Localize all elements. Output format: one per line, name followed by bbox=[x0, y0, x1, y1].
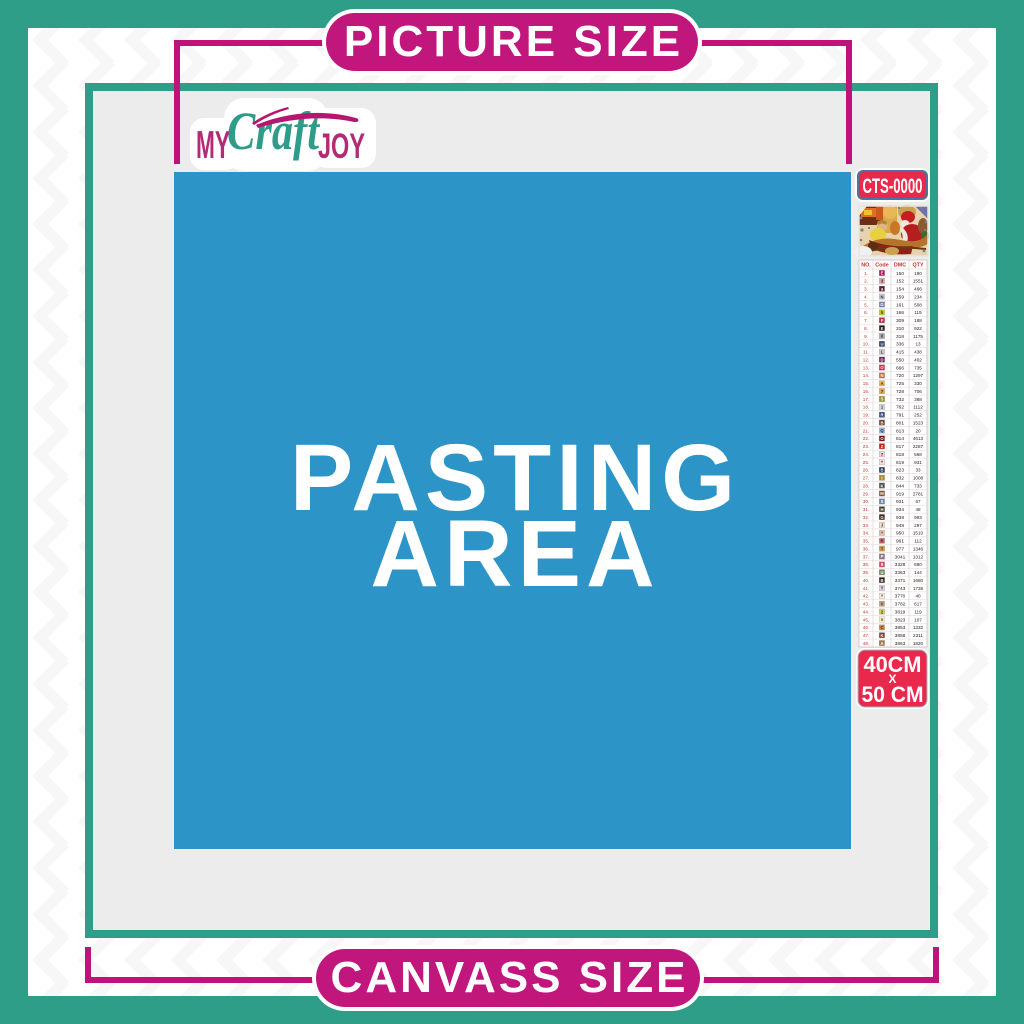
svg-text:43.: 43. bbox=[863, 602, 869, 607]
svg-text:46.: 46. bbox=[863, 625, 869, 630]
svg-text:336: 336 bbox=[896, 342, 904, 348]
svg-text:252: 252 bbox=[914, 413, 922, 418]
svg-text:1297: 1297 bbox=[913, 373, 924, 378]
svg-text:33: 33 bbox=[915, 468, 921, 473]
svg-text:188: 188 bbox=[914, 318, 922, 323]
svg-text:28.: 28. bbox=[863, 483, 869, 488]
svg-text:20.: 20. bbox=[863, 420, 869, 425]
svg-text:150: 150 bbox=[896, 271, 904, 277]
svg-text:961: 961 bbox=[896, 539, 904, 545]
svg-text:733: 733 bbox=[914, 483, 922, 488]
svg-text:38.: 38. bbox=[863, 562, 869, 567]
svg-text:818: 818 bbox=[896, 452, 904, 458]
svg-text:938: 938 bbox=[896, 515, 904, 521]
svg-text:9.: 9. bbox=[864, 334, 868, 339]
svg-text:159: 159 bbox=[896, 294, 904, 300]
svg-text:3371: 3371 bbox=[895, 578, 906, 584]
svg-text:T: T bbox=[881, 546, 884, 551]
svg-text:5.: 5. bbox=[864, 302, 868, 307]
svg-text:1312: 1312 bbox=[913, 554, 924, 559]
svg-text:K: K bbox=[880, 633, 883, 638]
svg-text:3782: 3782 bbox=[895, 602, 906, 608]
svg-text:MY: MY bbox=[196, 124, 230, 167]
svg-text:1008: 1008 bbox=[913, 476, 924, 481]
svg-text:A: A bbox=[880, 381, 883, 386]
svg-text:G: G bbox=[880, 302, 883, 307]
svg-text:107: 107 bbox=[914, 617, 922, 622]
svg-text:115: 115 bbox=[914, 310, 922, 315]
svg-text:U: U bbox=[880, 342, 883, 347]
svg-text:4.: 4. bbox=[864, 294, 868, 299]
svg-text:N: N bbox=[880, 294, 883, 299]
svg-text:8.: 8. bbox=[864, 326, 868, 331]
svg-text:K: K bbox=[880, 483, 883, 488]
svg-text:144: 144 bbox=[914, 570, 922, 575]
svg-text:568: 568 bbox=[914, 452, 922, 457]
svg-text:154: 154 bbox=[896, 287, 904, 293]
svg-text:15.: 15. bbox=[863, 381, 869, 386]
svg-text:813: 813 bbox=[896, 428, 904, 434]
svg-text:16.: 16. bbox=[863, 389, 869, 394]
svg-text:B: B bbox=[880, 420, 883, 425]
svg-text:25.: 25. bbox=[863, 460, 869, 465]
svg-text:1523: 1523 bbox=[913, 420, 924, 425]
svg-text:40: 40 bbox=[915, 594, 921, 599]
svg-text:735: 735 bbox=[914, 365, 922, 370]
svg-text:438: 438 bbox=[914, 350, 922, 355]
svg-text:728: 728 bbox=[896, 389, 904, 395]
svg-text:977: 977 bbox=[896, 546, 904, 552]
svg-text:550: 550 bbox=[896, 357, 904, 363]
svg-text:318: 318 bbox=[896, 334, 904, 340]
svg-text:112: 112 bbox=[914, 539, 922, 544]
svg-text:18.: 18. bbox=[863, 405, 869, 410]
svg-text:3.: 3. bbox=[864, 287, 868, 292]
svg-text:1680: 1680 bbox=[913, 578, 924, 583]
svg-text:119: 119 bbox=[914, 609, 922, 614]
svg-text:14.: 14. bbox=[863, 373, 869, 378]
svg-text:23.: 23. bbox=[863, 444, 869, 449]
svg-text:B: B bbox=[880, 468, 883, 473]
svg-text:U: U bbox=[880, 570, 883, 575]
svg-text:1820: 1820 bbox=[913, 641, 924, 646]
svg-text:11.: 11. bbox=[863, 350, 869, 355]
svg-text:45.: 45. bbox=[863, 617, 869, 622]
svg-text:725: 725 bbox=[896, 381, 904, 387]
svg-text:Y: Y bbox=[881, 586, 884, 591]
svg-text:Craft: Craft bbox=[227, 101, 321, 161]
svg-text:17.: 17. bbox=[863, 397, 869, 402]
svg-text:2311: 2311 bbox=[913, 633, 923, 638]
svg-text:161: 161 bbox=[896, 302, 904, 308]
svg-text:3853: 3853 bbox=[895, 625, 906, 631]
svg-text:67: 67 bbox=[915, 499, 921, 504]
svg-text:Z: Z bbox=[881, 444, 884, 449]
svg-text:B: B bbox=[880, 578, 883, 583]
svg-text:2.: 2. bbox=[864, 279, 868, 284]
svg-text:931: 931 bbox=[896, 499, 904, 505]
svg-text:310: 310 bbox=[896, 326, 904, 332]
svg-text:DMC: DMC bbox=[894, 263, 906, 269]
svg-text:844: 844 bbox=[896, 483, 904, 489]
svg-text:21.: 21. bbox=[863, 428, 869, 433]
svg-text:10.: 10. bbox=[863, 342, 869, 347]
svg-text:26.: 26. bbox=[863, 468, 869, 473]
svg-text:7.: 7. bbox=[864, 318, 868, 323]
svg-text:234: 234 bbox=[914, 294, 922, 299]
svg-text:3328: 3328 bbox=[895, 562, 906, 568]
svg-text:1.: 1. bbox=[864, 271, 868, 276]
svg-text:297: 297 bbox=[914, 523, 922, 528]
svg-text:1332: 1332 bbox=[913, 625, 924, 630]
svg-text:48: 48 bbox=[915, 507, 921, 512]
svg-text:40.: 40. bbox=[863, 578, 869, 583]
svg-text:30.: 30. bbox=[863, 499, 869, 504]
svg-text:617: 617 bbox=[914, 602, 922, 607]
svg-text:801: 801 bbox=[896, 420, 904, 426]
svg-text:I: I bbox=[881, 475, 882, 480]
svg-text:1112: 1112 bbox=[913, 405, 923, 410]
svg-text:M: M bbox=[880, 491, 884, 496]
svg-text:4613: 4613 bbox=[913, 436, 924, 441]
svg-text:1551: 1551 bbox=[913, 279, 924, 284]
svg-text:720: 720 bbox=[896, 373, 904, 379]
svg-text:24.: 24. bbox=[863, 452, 869, 457]
svg-text:415: 415 bbox=[896, 350, 904, 356]
svg-text:309: 309 bbox=[896, 318, 904, 324]
svg-text:466: 466 bbox=[914, 287, 922, 292]
svg-text:814: 814 bbox=[896, 436, 904, 442]
svg-text:190: 190 bbox=[914, 271, 922, 276]
svg-text:330: 330 bbox=[914, 381, 922, 386]
svg-text:819: 819 bbox=[896, 460, 904, 466]
svg-text:3858: 3858 bbox=[895, 633, 906, 639]
svg-text:3770: 3770 bbox=[895, 594, 906, 600]
svg-text:934: 934 bbox=[896, 507, 904, 513]
svg-text:35.: 35. bbox=[863, 539, 869, 544]
svg-text:931: 931 bbox=[914, 460, 922, 465]
svg-text:N: N bbox=[880, 373, 883, 378]
svg-text:732: 732 bbox=[896, 397, 904, 403]
svg-text:D: D bbox=[880, 357, 883, 362]
svg-text:h: h bbox=[881, 310, 884, 315]
svg-text:NO.: NO. bbox=[861, 263, 871, 269]
svg-text:13.: 13. bbox=[863, 365, 869, 370]
svg-text:S: S bbox=[881, 397, 884, 402]
svg-text:32.: 32. bbox=[863, 515, 869, 520]
svg-text:S: S bbox=[881, 499, 884, 504]
svg-text:31.: 31. bbox=[863, 507, 869, 512]
svg-text:42.: 42. bbox=[863, 594, 869, 599]
svg-text:706: 706 bbox=[914, 389, 922, 394]
svg-text:832: 832 bbox=[896, 476, 904, 482]
svg-text:27.: 27. bbox=[863, 476, 869, 481]
svg-text:44.: 44. bbox=[863, 609, 869, 614]
svg-text:1175: 1175 bbox=[913, 334, 923, 339]
svg-text:666: 666 bbox=[896, 365, 904, 371]
svg-text:3823: 3823 bbox=[895, 617, 906, 623]
svg-text:1346: 1346 bbox=[913, 546, 924, 551]
svg-text:817: 817 bbox=[896, 444, 904, 450]
svg-text:Code: Code bbox=[875, 263, 888, 269]
svg-text:388: 388 bbox=[914, 397, 922, 402]
svg-text:R: R bbox=[880, 412, 883, 417]
svg-text:508: 508 bbox=[914, 302, 922, 307]
svg-text:H: H bbox=[880, 507, 883, 512]
svg-text:C: C bbox=[880, 625, 883, 630]
svg-text:CTS-0000: CTS-0000 bbox=[863, 175, 923, 198]
svg-text:QTY: QTY bbox=[912, 263, 923, 269]
svg-text:3363: 3363 bbox=[895, 570, 906, 576]
svg-text:919: 919 bbox=[896, 491, 904, 497]
svg-text:13: 13 bbox=[915, 342, 921, 347]
svg-text:20: 20 bbox=[915, 428, 921, 433]
svg-text:3041: 3041 bbox=[895, 554, 906, 560]
svg-text:41.: 41. bbox=[863, 586, 869, 591]
svg-text:2781: 2781 bbox=[913, 491, 924, 496]
svg-text:P: P bbox=[881, 554, 884, 559]
svg-text:3863: 3863 bbox=[895, 641, 906, 647]
svg-text:X: X bbox=[881, 334, 884, 339]
svg-text:948: 948 bbox=[896, 523, 904, 529]
svg-text:762: 762 bbox=[896, 405, 904, 411]
svg-text:1510: 1510 bbox=[913, 531, 924, 536]
svg-text:47.: 47. bbox=[863, 633, 869, 638]
svg-text:R: R bbox=[880, 538, 883, 543]
svg-text:G: G bbox=[880, 515, 883, 520]
svg-text:1738: 1738 bbox=[913, 586, 924, 591]
svg-text:166: 166 bbox=[896, 310, 904, 316]
svg-text:3819: 3819 bbox=[895, 609, 906, 615]
svg-text:6.: 6. bbox=[864, 310, 868, 315]
svg-text:50 CM: 50 CM bbox=[862, 682, 924, 707]
svg-text:L: L bbox=[881, 349, 884, 354]
svg-text:993: 993 bbox=[914, 515, 922, 520]
svg-text:E: E bbox=[881, 271, 884, 276]
svg-text:33.: 33. bbox=[863, 523, 869, 528]
svg-text:680: 680 bbox=[914, 562, 922, 567]
svg-text:48.: 48. bbox=[863, 641, 869, 646]
svg-text:37.: 37. bbox=[863, 554, 869, 559]
svg-text:2287: 2287 bbox=[913, 444, 924, 449]
svg-text:36.: 36. bbox=[863, 546, 869, 551]
svg-text:3743: 3743 bbox=[895, 586, 906, 592]
svg-text:29.: 29. bbox=[863, 491, 869, 496]
svg-text:JOY: JOY bbox=[318, 127, 365, 166]
svg-text:E: E bbox=[881, 326, 884, 331]
svg-text:922: 922 bbox=[914, 326, 922, 331]
svg-text:39.: 39. bbox=[863, 570, 869, 575]
svg-text:A: A bbox=[880, 641, 883, 646]
svg-text:402: 402 bbox=[914, 357, 922, 362]
svg-text:152: 152 bbox=[896, 279, 904, 285]
svg-text:823: 823 bbox=[896, 468, 904, 474]
svg-text:791: 791 bbox=[896, 413, 904, 419]
svg-text:950: 950 bbox=[896, 531, 904, 537]
svg-text:12.: 12. bbox=[863, 357, 869, 362]
svg-text:F: F bbox=[881, 318, 884, 323]
svg-text:34.: 34. bbox=[863, 531, 869, 536]
svg-text:V: V bbox=[881, 601, 884, 606]
svg-text:22.: 22. bbox=[863, 436, 869, 441]
svg-text:19.: 19. bbox=[863, 413, 869, 418]
